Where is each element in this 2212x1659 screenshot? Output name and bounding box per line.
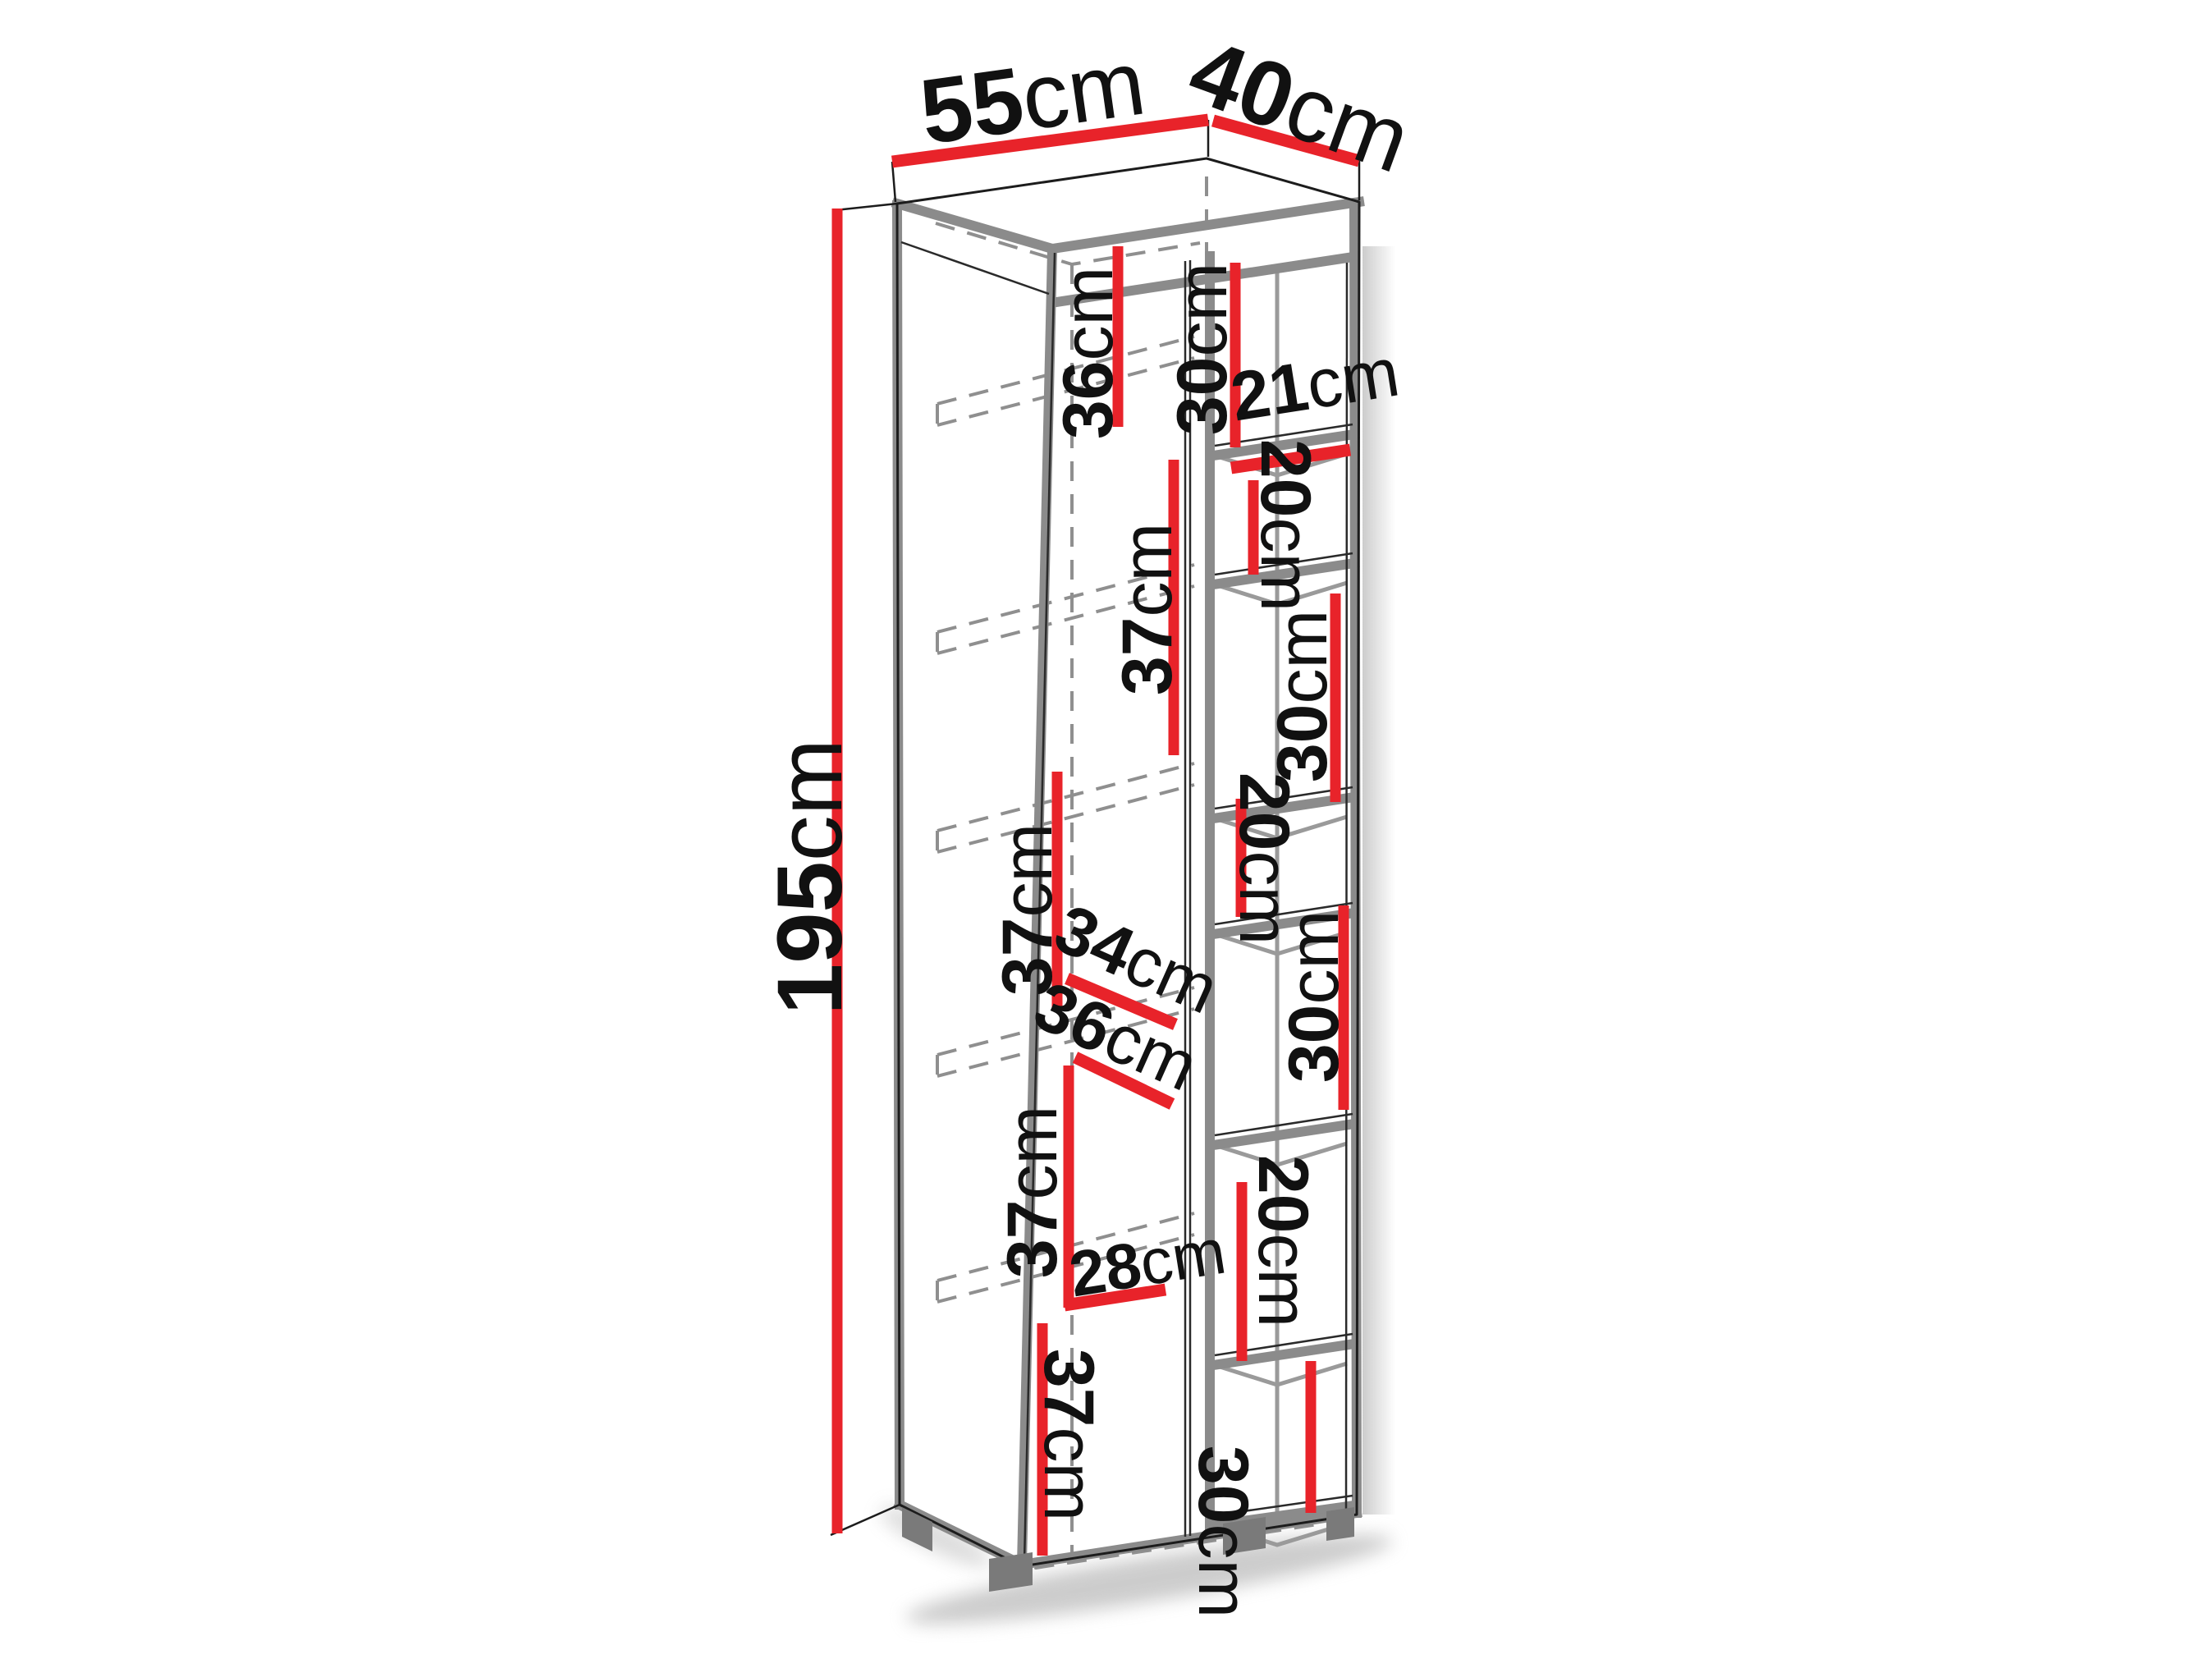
label-right-5: 30cm [1275, 910, 1353, 1083]
furniture-dimension-diagram: 55cm 40cm 195cm 36cm 37cm 37cm 37cm 37cm… [0, 0, 2212, 1659]
label-right-7: 30cm [1184, 1446, 1262, 1618]
label-left-5: 37cm [1029, 1349, 1108, 1521]
label-left-4: 37cm [993, 1106, 1072, 1278]
label-right-6: 20cm [1243, 1155, 1322, 1327]
label-width-55: 55cm [914, 30, 1152, 163]
label-right-1: 30cm [1163, 263, 1242, 435]
label-left-2: 37cm [1108, 523, 1187, 695]
foot-right [1326, 1507, 1354, 1541]
label-height-195: 195cm [758, 739, 861, 1015]
label-left-1: 36cm [1049, 267, 1128, 439]
side-shadow [1362, 246, 1395, 1515]
cabinet-drawing: 55cm 40cm 195cm 36cm 37cm 37cm 37cm 37cm… [0, 0, 2212, 1659]
label-right-3: 30cm [1263, 610, 1342, 782]
foot-front [989, 1552, 1033, 1592]
label-right-2: 20cm [1246, 439, 1325, 612]
